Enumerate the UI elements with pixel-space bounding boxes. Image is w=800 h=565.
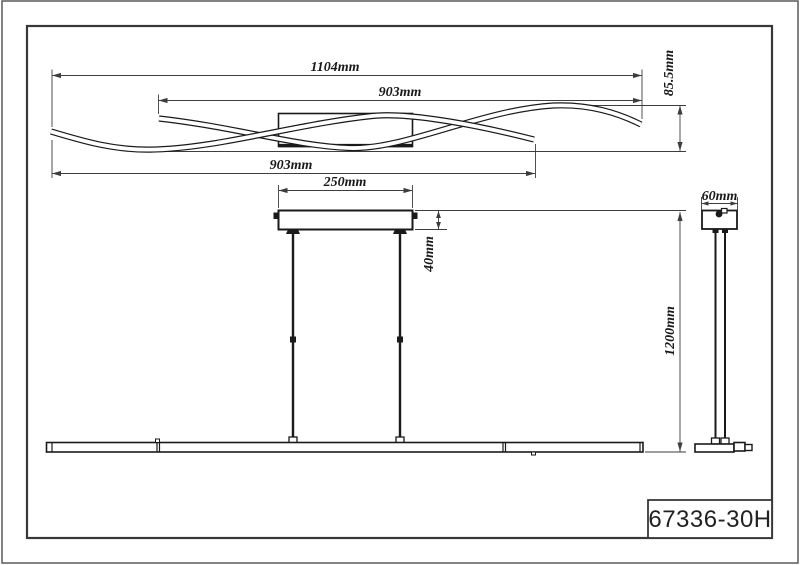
dim-upper-wave: 903mm xyxy=(159,85,643,114)
title-block: 67336-30H xyxy=(648,500,772,538)
bar-side-tip xyxy=(745,445,752,451)
side-rod-foot-front xyxy=(712,438,720,444)
rod-mount-right xyxy=(393,230,407,235)
dim-label-hanging-height: 1200mm xyxy=(663,306,678,356)
dim-canopy-height: 40mm xyxy=(415,211,686,273)
technical-drawing: 1104mm 903mm 85.5mm 903mm xyxy=(0,0,800,565)
bar-side-plate xyxy=(695,444,734,452)
front-view: 250mm 40mm 1200mm xyxy=(47,175,687,455)
rod-mount-left xyxy=(286,230,300,235)
side-rod-mount-front xyxy=(713,229,719,233)
dim-label-lower-wave: 903mm xyxy=(270,158,313,173)
dim-label-wave-depth: 85.5mm xyxy=(662,50,677,96)
dim-hanging-height: 1200mm xyxy=(645,212,686,452)
dim-canopy-depth: 60mm xyxy=(702,189,738,210)
top-view: 1104mm 903mm 85.5mm 903mm xyxy=(51,50,686,178)
dim-label-canopy-depth: 60mm xyxy=(702,189,738,204)
cable-gland xyxy=(722,209,728,214)
dim-label-canopy-height: 40mm xyxy=(422,236,437,273)
canopy-end-cap-left xyxy=(274,213,279,220)
bar-tip-upper xyxy=(156,439,160,443)
side-view: 60mm xyxy=(695,189,752,452)
dim-canopy-width: 250mm xyxy=(279,175,413,208)
bar-tip-lower xyxy=(532,452,536,455)
model-number: 67336-30H xyxy=(648,506,771,533)
rod-connector-right xyxy=(397,337,403,343)
light-bar-front-view xyxy=(47,443,644,453)
cable-entry-dot xyxy=(716,211,723,218)
bar-side-clamp xyxy=(734,443,745,452)
side-rod-mount-back xyxy=(722,229,728,233)
dim-label-canopy-width: 250mm xyxy=(323,175,367,190)
rod-connector-left xyxy=(290,337,296,343)
side-rod-foot-back xyxy=(721,438,729,444)
dim-label-upper-wave: 903mm xyxy=(379,85,422,100)
canopy-front-view xyxy=(279,211,413,230)
dim-wave-depth: 85.5mm xyxy=(662,50,683,151)
dim-label-overall-width: 1104mm xyxy=(310,60,359,75)
canopy-end-cap-right xyxy=(413,213,418,220)
